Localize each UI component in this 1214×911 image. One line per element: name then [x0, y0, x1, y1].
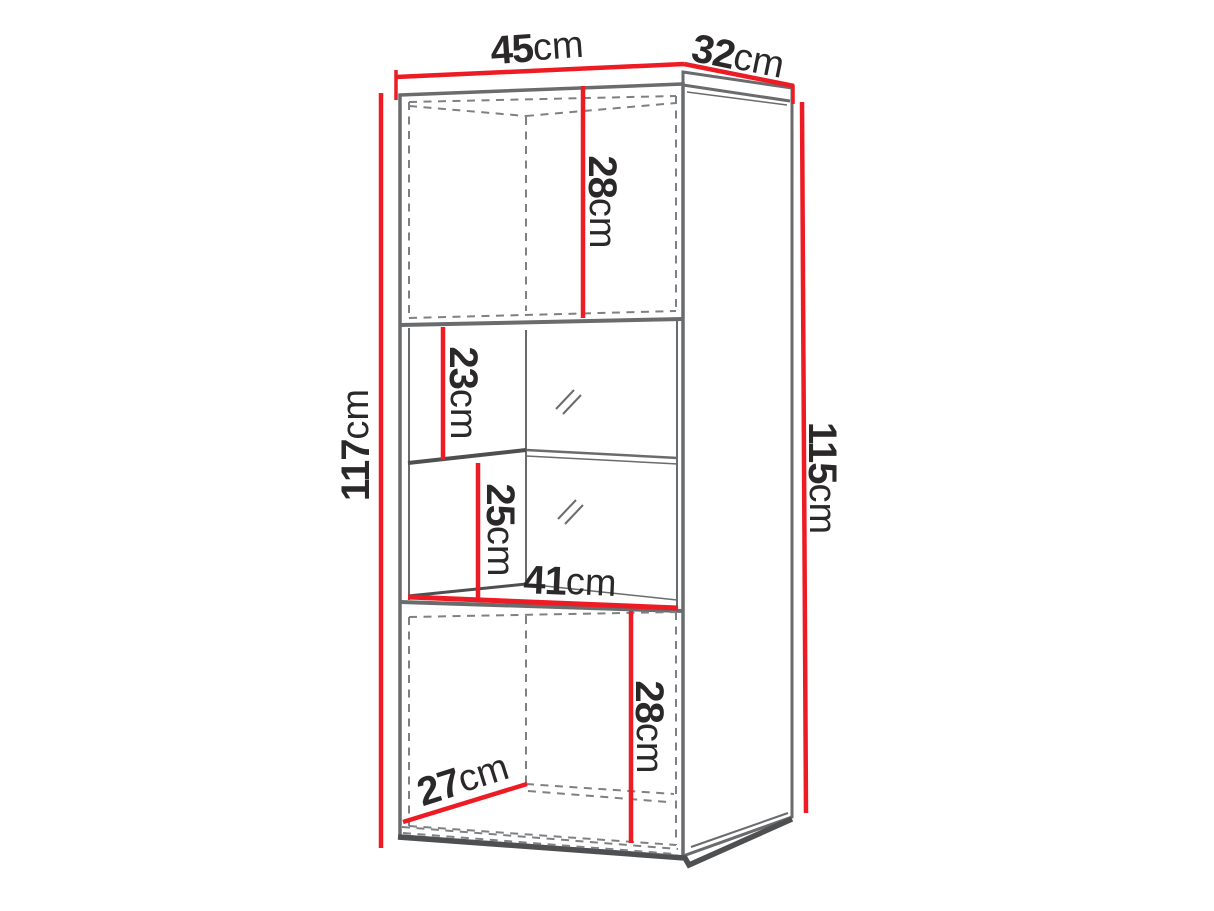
cabinet-dimension-drawing: 45cm 32cm 28cm 23cm 25cm 41cm 117cm 115c…	[0, 0, 1214, 911]
dim-label-side-height: 115cm	[800, 422, 844, 534]
dim-label-lower-door-height: 28cm	[627, 680, 671, 773]
dim-label-interior-width: 41cm	[523, 558, 618, 606]
dim-label-front-height: 117cm	[334, 389, 378, 501]
dim-label-upper-door-height: 28cm	[580, 155, 624, 248]
dim-label-upper-compartment-height: 23cm	[441, 346, 485, 439]
dim-label-lower-compartment-height: 25cm	[478, 483, 522, 576]
cabinet-side-panel	[683, 72, 792, 856]
furniture-dimension-diagram: 45cm 32cm 28cm 23cm 25cm 41cm 117cm 115c…	[0, 0, 1214, 911]
dim-label-top-width: 45cm	[489, 23, 585, 73]
